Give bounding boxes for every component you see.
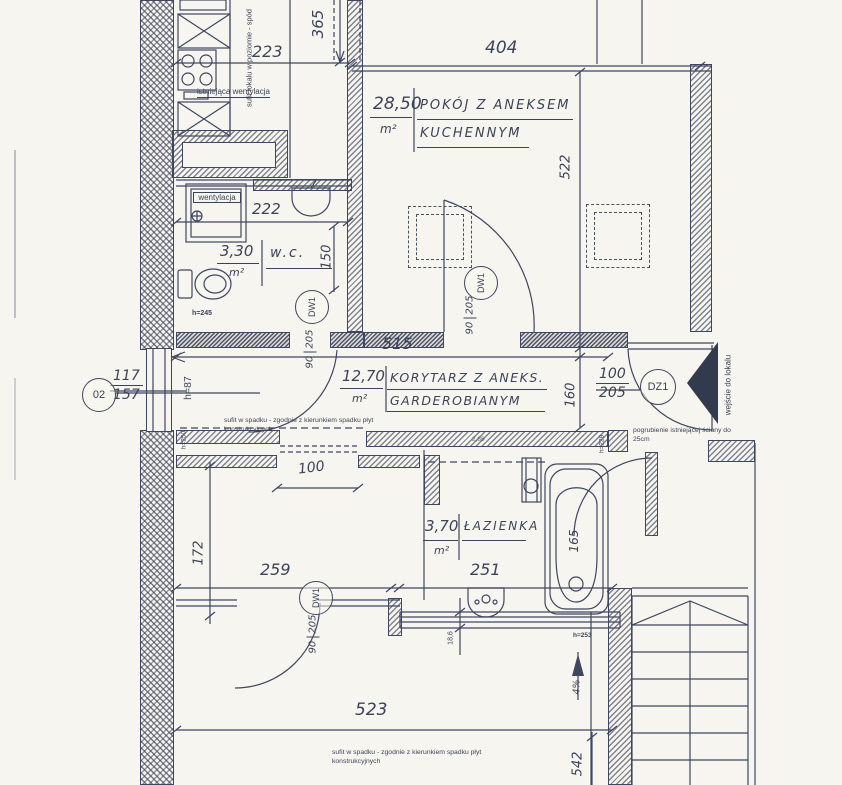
door-tag-label: DZ1 (648, 381, 669, 393)
dim-522: 522 (559, 155, 574, 180)
door-tag-dz1: DZ1 (640, 369, 676, 405)
window-tag-02: 02 (82, 378, 116, 412)
note-existing-vent: istniejąca wentylacja (197, 87, 270, 98)
kitchen-counter-top (182, 142, 276, 168)
dim-365: 365 (309, 10, 327, 39)
exterior-wall-right-upper (690, 64, 712, 332)
korytarz-unit: m² (352, 392, 367, 405)
pokoj-name-2: KUCHENNYM (420, 126, 521, 141)
korytarz-name-2: GARDEROBIANYM (390, 393, 521, 408)
corridor-top-wall-2 (330, 332, 364, 348)
height-bath: h=253 (573, 632, 592, 639)
height-entry-pier: h=228 (599, 435, 606, 453)
korytarz-name-1: KORYTARZ Z ANEKS. (390, 370, 544, 385)
entry-direction-arrow (687, 342, 718, 424)
pokoj-name-2-underline (417, 147, 529, 148)
dim-404: 404 (485, 38, 517, 58)
door-height: 205 (308, 614, 319, 633)
door-size-bottom: 90205 (307, 614, 320, 653)
entry-pier (608, 430, 628, 452)
pokoj-name-1-underline (417, 119, 573, 120)
exterior-wall-left-upper (140, 0, 174, 350)
dim-100-low: 100 (297, 458, 325, 477)
wc-name: w.c. (270, 245, 305, 261)
window-width: 117 (110, 368, 143, 386)
slope-arrow (572, 654, 584, 676)
dim-251: 251 (470, 560, 501, 579)
stairs-side-wall (608, 588, 632, 785)
korytarz-name-1-underline (387, 389, 547, 390)
lazienka-unit: m² (434, 544, 449, 557)
dim-2-86: 2,86 (472, 436, 485, 443)
corridor-top-wall-4 (520, 332, 628, 348)
door-width: 90 (308, 641, 319, 654)
dim-223: 223 (252, 42, 283, 61)
entry-height: 205 (596, 384, 629, 401)
height-wc: h=245 (192, 310, 212, 317)
floorplan-scan: 28,50 m² POKÓJ Z ANEKSEM KUCHENNYM 3,30 … (0, 0, 842, 785)
height-corridor: h=250 (181, 431, 188, 449)
pokoj-unit: m² (380, 122, 397, 136)
door-tag-dw1-bottom: DW1 (299, 581, 333, 615)
slope-label: 4% (572, 679, 583, 694)
korytarz-area-bar (340, 388, 383, 389)
korytarz-area: 12,70 (342, 367, 385, 385)
room-door-size: 90205 (464, 295, 477, 334)
scan-smudge (14, 150, 16, 318)
skylight-outline-inner (416, 214, 464, 260)
wc-area-bar (217, 263, 259, 264)
dim-222: 222 (252, 200, 281, 218)
window-tag-label: 02 (93, 389, 105, 401)
window-02 (146, 348, 172, 432)
dim-150: 150 (320, 245, 335, 270)
door-tag-dw1-wc: DW1 (295, 290, 329, 324)
corridor-top-wall-1 (176, 332, 290, 348)
vent-duct-wall (253, 179, 352, 191)
door-width: 90 (465, 322, 476, 335)
bath-top-wall-stub (358, 455, 420, 468)
dim-523: 523 (355, 700, 387, 720)
door-size-wc: 90205 (304, 329, 317, 368)
door-height: 205 (465, 295, 476, 314)
scan-smudge (14, 378, 16, 480)
dim-18-6: 18,6 (448, 631, 455, 645)
korytarz-name-2-underline (387, 411, 545, 412)
pokoj-area: 28,50 (373, 94, 422, 114)
dim-172: 172 (192, 541, 207, 566)
dim-259: 259 (260, 560, 291, 579)
corridor-bottom-wall-mid (366, 431, 608, 447)
dim-165: 165 (567, 530, 581, 553)
wc-unit: m² (229, 266, 244, 279)
skylight-outline-inner (594, 212, 642, 260)
lazienka-name: ŁAZIENKA (464, 519, 539, 533)
door-width: 90 (305, 356, 316, 369)
pokoj-area-bar (370, 117, 412, 118)
door-tag-label: DW1 (311, 588, 321, 608)
door-tag-label: DW1 (307, 297, 317, 317)
note-slope-upper: sufit w spadku - zgodnie z kierunkiem sp… (224, 417, 396, 435)
height-window: h=87 (182, 376, 194, 400)
lazienka-area: 3,70 (425, 517, 458, 535)
dim-515: 515 (382, 334, 413, 353)
wc-area: 3,30 (220, 242, 253, 260)
corridor-bottom-wall-left-b (176, 455, 277, 468)
exterior-wall-left-lower (140, 430, 174, 785)
note-entry: wejście do lokalu (724, 355, 733, 415)
bottom-door-stub (388, 598, 402, 636)
pokoj-name-1: POKÓJ Z ANEKSEM (420, 98, 571, 113)
door-height: 205 (305, 329, 316, 348)
lazienka-name-underline (462, 540, 526, 541)
vent-label: wentylacja (193, 192, 241, 203)
note-wall-thicken: pogrubienie istniejącej ściany do 25cm (633, 427, 733, 445)
entry-width: 100 (596, 366, 629, 384)
wall-kitchen-pier (347, 0, 363, 332)
lazienka-area-bar (423, 540, 458, 541)
bath-door-stub (645, 452, 658, 536)
note-slope-lower: sufit w spadku - zgodnie z kierunkiem sp… (332, 749, 522, 767)
dim-160: 160 (564, 383, 579, 408)
bath-west-pier (424, 455, 440, 505)
door-tag-label: DW1 (476, 273, 486, 293)
entry-door-size: 100 205 (596, 366, 629, 401)
dim-542: 542 (571, 752, 586, 777)
